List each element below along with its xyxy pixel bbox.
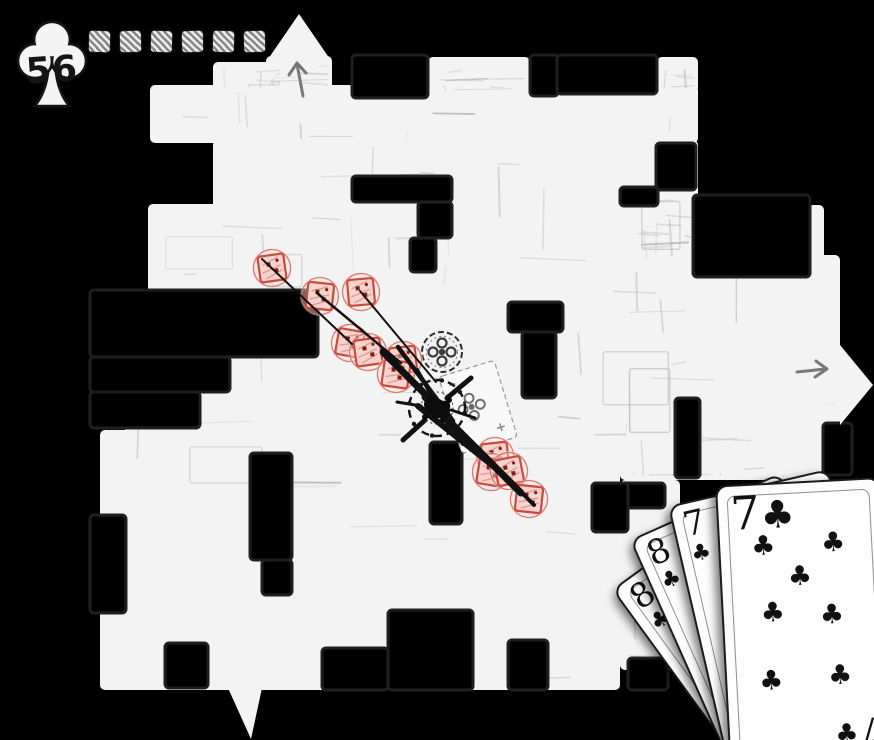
charge-square: [213, 31, 235, 53]
pencil-stroke: [389, 238, 390, 268]
exit-top[interactable]: [266, 14, 332, 62]
pencil-stroke: [650, 474, 651, 476]
wall-block: [90, 290, 318, 357]
wall-block: [508, 640, 548, 690]
club-pip-icon: ♣: [819, 599, 845, 631]
pencil-stroke: [498, 166, 499, 217]
pencil-stroke: [636, 271, 637, 311]
wall-block: [620, 187, 658, 206]
wall-block: [508, 302, 563, 332]
wall-block: [410, 238, 436, 272]
club-pip-icon: ♣: [760, 597, 786, 629]
charge-bar: [89, 31, 265, 52]
charge-square: [244, 31, 266, 53]
wall-block: [530, 55, 558, 96]
wall-block: [430, 442, 462, 524]
club-pip-icon: ♣: [750, 530, 776, 562]
wall-block: [656, 143, 696, 190]
pencil-stroke: [433, 113, 476, 114]
pencil-stroke: [224, 68, 225, 88]
exit-right[interactable]: [840, 345, 873, 425]
pencil-stroke: [669, 118, 670, 133]
card-hand: 8♣8♣7♣7♣♣♣♣♣♣♣♣♣7: [713, 478, 874, 740]
wall-block: [675, 398, 700, 478]
floor-area: [620, 427, 823, 480]
pencil-stroke: [420, 173, 434, 174]
game-screen: 56 8♣8♣7♣7♣♣♣♣♣♣♣♣♣7: [0, 0, 874, 740]
wall-block: [90, 357, 230, 392]
club-counter: 56: [6, 14, 98, 120]
charge-square: [89, 31, 111, 53]
exit-bottom[interactable]: [228, 688, 262, 739]
charge-square: [182, 31, 204, 53]
pencil-stroke: [657, 224, 681, 225]
wall-block: [250, 453, 292, 560]
pencil-stroke: [184, 274, 196, 275]
wall-block: [418, 202, 452, 238]
club-pip-icon: ♣: [758, 665, 784, 697]
wall-block: [352, 176, 452, 202]
club-suit-icon: ♣: [835, 721, 860, 740]
wall-block: [823, 423, 852, 475]
wall-block: [165, 643, 208, 688]
charge-square: [151, 31, 173, 53]
club-suit-icon: ♣: [688, 540, 714, 566]
wall-block: [90, 392, 200, 428]
pencil-stroke: [543, 189, 544, 250]
wall-block: [352, 55, 428, 98]
pencil-stroke: [297, 73, 328, 74]
wall-block: [557, 55, 657, 94]
pencil-stroke: [183, 117, 208, 118]
wall-block: [322, 648, 388, 690]
floor-area: [620, 255, 840, 430]
pencil-stroke: [685, 69, 686, 88]
card-rank-rotated: 7: [859, 711, 874, 740]
club-counter-value: 56: [5, 47, 100, 94]
wall-block: [592, 483, 628, 532]
charge-square: [120, 31, 142, 53]
hand-card-7-of-clubs[interactable]: 7♣♣♣♣♣♣♣♣♣7: [715, 477, 874, 740]
wall-block: [262, 560, 292, 595]
wall-block: [628, 658, 668, 690]
pencil-stroke: [498, 164, 520, 165]
coin-pickup[interactable]: [422, 332, 462, 372]
wall-block: [388, 610, 473, 690]
club-pip-icon: ♣: [827, 659, 853, 691]
wall-block: [522, 332, 556, 398]
wall-block: [693, 195, 810, 277]
pencil-stroke: [300, 124, 301, 139]
card-bottom-corner-index: ♣7: [834, 711, 874, 740]
club-pip-icon: ♣: [820, 526, 846, 558]
pencil-stroke: [489, 78, 524, 79]
club-pip-icon: ♣: [787, 560, 813, 592]
pencil-stroke: [262, 234, 263, 250]
wall-block: [90, 515, 126, 613]
